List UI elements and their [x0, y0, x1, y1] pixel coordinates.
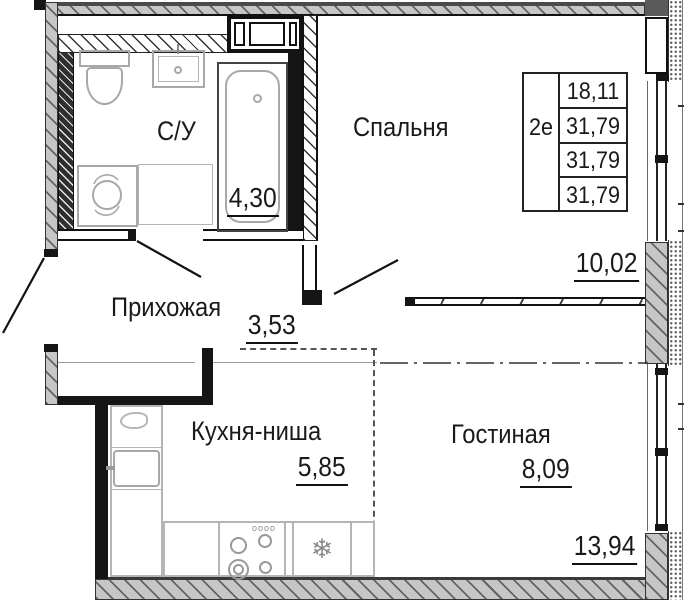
area-living-room-total: 13,94 [572, 531, 637, 565]
info-table: 2е 18,11 31,79 31,79 31,79 [522, 72, 628, 212]
info-table-row-divider-2 [560, 142, 626, 144]
area-cell-1: 18,11 [563, 78, 622, 106]
unit-type-cell: 2е [526, 114, 557, 142]
stove-burner-2 [258, 534, 272, 548]
area-living-room: 8,09 [520, 454, 571, 488]
area-cell-2: 31,79 [563, 113, 622, 141]
entrance-door-swing [3, 258, 44, 333]
snowflake-icon: ❄ [311, 534, 334, 564]
area-bathroom: 4,30 [227, 183, 278, 217]
label-bathroom: С/У [157, 117, 196, 147]
area-hallway: 3,53 [246, 310, 297, 344]
bathroom-counter [138, 164, 213, 225]
bedroom-door-swing [334, 260, 398, 294]
info-table-row-divider-1 [560, 107, 626, 109]
area-bedroom: 10,02 [574, 248, 639, 282]
kitchen-sink-icon [113, 450, 160, 487]
stove-burner-1 [230, 537, 247, 554]
area-cell-4: 31,79 [563, 182, 622, 210]
info-table-row-divider-3 [560, 176, 626, 178]
floor-plan: oooo ❄ С/У 4,30 Спальня 10,02 Прихожая 3… [0, 0, 689, 600]
area-kitchen-niche: 5,85 [296, 452, 347, 486]
bathroom-door-swing [137, 241, 201, 277]
stove-burner-4 [259, 561, 272, 574]
kitchen-counter-divider-2 [110, 489, 163, 490]
area-cell-3: 31,79 [563, 147, 622, 175]
kitchen-counter-divider-1 [110, 447, 163, 448]
stove-knobs: oooo [252, 524, 276, 533]
kitchen-sink-tap-icon [106, 466, 115, 470]
stove-icon: oooo [218, 521, 286, 577]
label-living-room: Гостиная [451, 420, 551, 450]
label-kitchen-niche: Кухня-ниша [191, 417, 321, 447]
bathtub-drain [253, 94, 262, 103]
kitchen-counter-left [110, 405, 163, 577]
label-hallway: Прихожая [111, 293, 221, 323]
washing-machine-drum [92, 180, 122, 210]
toilet-icon [79, 50, 130, 67]
stove-burner-3-inner [233, 564, 244, 575]
bath-sink-drain [174, 66, 182, 74]
label-bedroom: Спальня [353, 113, 448, 143]
kitchen-kettle-icon [120, 412, 148, 429]
bath-sink-tap-icon [177, 44, 179, 54]
fridge-icon: ❄ [292, 521, 352, 577]
